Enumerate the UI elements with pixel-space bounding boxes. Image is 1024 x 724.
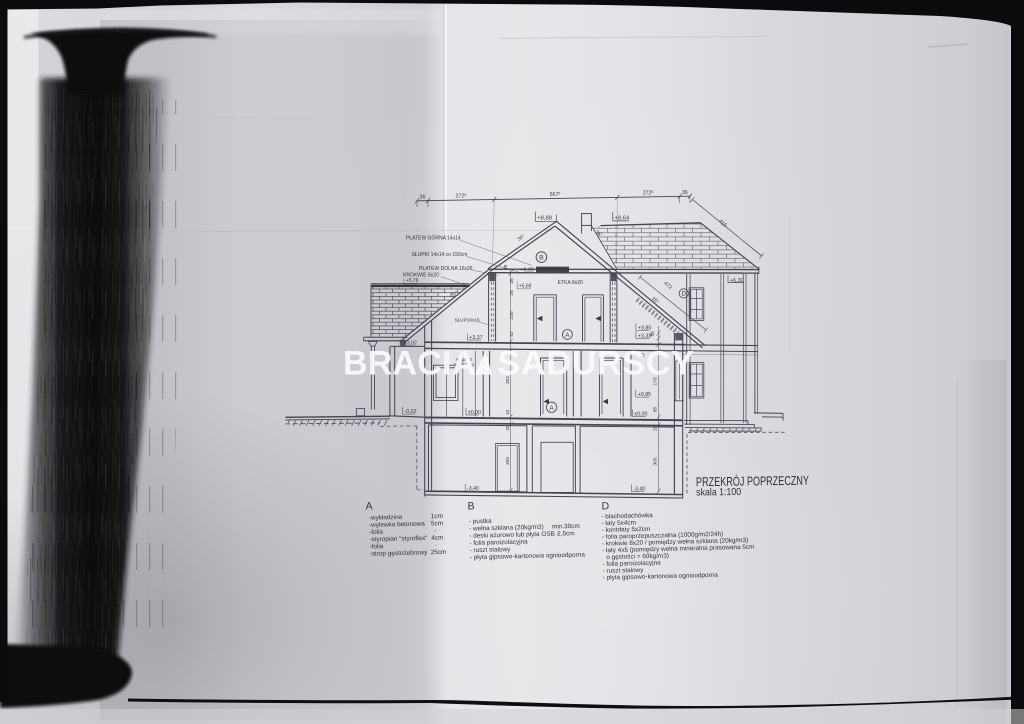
svg-text:·: · [434, 542, 436, 549]
svg-text:25cm: 25cm [431, 549, 447, 556]
svg-text:85: 85 [652, 407, 658, 413]
svg-text:ETKA 8x20: ETKA 8x20 [558, 280, 583, 286]
svg-text:-strop gęstożebrowy: -strop gęstożebrowy [370, 549, 428, 557]
svg-text:SADURSCY: SADURSCY [498, 345, 695, 383]
svg-text:2,5cm: 2,5cm [557, 530, 575, 537]
svg-text:-folia: -folia [369, 543, 383, 550]
svg-text:SŁUPKI 14x14 co 150cm: SŁUPKI 14x14 co 150cm [412, 252, 468, 258]
svg-text:A: A [365, 500, 372, 512]
svg-text:25: 25 [652, 426, 658, 432]
svg-text:A: A [549, 405, 554, 412]
svg-text:BRACIA: BRACIA [343, 345, 476, 383]
svg-text:1cm: 1cm [431, 513, 443, 520]
svg-text:D: D [681, 291, 686, 298]
svg-text:230: 230 [509, 311, 515, 319]
svg-text:5cm: 5cm [431, 520, 443, 527]
svg-text:52: 52 [509, 331, 515, 337]
svg-text:PŁATEW DOLNA 16x26: PŁATEW DOLNA 16x26 [419, 266, 473, 272]
svg-text:-wylewka betonowa: -wylewka betonowa [369, 521, 425, 529]
svg-text:10: 10 [505, 410, 511, 416]
svg-text:28: 28 [503, 265, 509, 271]
svg-text:+5,76: +5,76 [406, 278, 419, 284]
svg-text:A: A [565, 332, 570, 339]
svg-text:305: 305 [505, 457, 511, 465]
svg-text:B: B [539, 255, 544, 262]
svg-text:+8,88: +8,88 [537, 215, 552, 221]
svg-text:D: D [601, 500, 609, 512]
svg-text:skala 1:100: skala 1:100 [696, 487, 741, 499]
svg-text:SŁUP16x16: SŁUP16x16 [455, 318, 480, 323]
svg-text:+6,30: +6,30 [730, 278, 744, 284]
svg-text:36: 36 [420, 194, 426, 200]
svg-text:26: 26 [509, 278, 515, 284]
svg-text:36: 36 [682, 190, 688, 196]
svg-text:min.30cm: min.30cm [552, 523, 580, 531]
svg-text:-folia: -folia [369, 529, 383, 536]
svg-text:305: 305 [652, 457, 658, 465]
svg-text:-: - [434, 527, 436, 534]
svg-text:-styropian "styroflex": -styropian "styroflex" [369, 535, 427, 543]
svg-text:B: B [467, 500, 474, 512]
svg-text:+6,35: +6,35 [520, 267, 534, 273]
svg-text:26: 26 [509, 290, 515, 296]
svg-text:4cm: 4cm [431, 535, 443, 542]
svg-text:PŁATEW GÓRNA 14x14: PŁATEW GÓRNA 14x14 [406, 235, 461, 242]
